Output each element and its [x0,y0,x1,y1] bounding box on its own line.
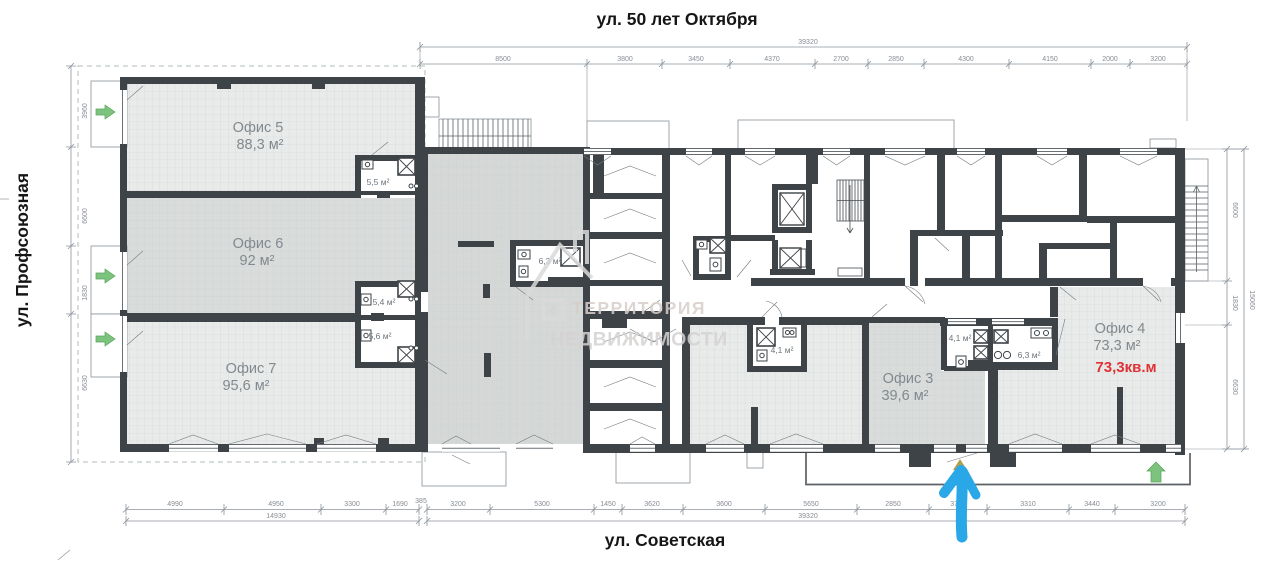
svg-text:2000: 2000 [1102,56,1118,63]
svg-text:2700: 2700 [833,56,849,63]
svg-text:39320: 39320 [798,39,818,46]
svg-text:15060: 15060 [1248,290,1255,310]
svg-text:ул. 50 лет Октября: ул. 50 лет Октября [596,9,757,29]
svg-text:ул. Профсоюзная: ул. Профсоюзная [12,173,32,327]
svg-text:39320: 39320 [798,513,818,520]
svg-text:5,5 м²: 5,5 м² [367,177,390,187]
svg-text:Офис 7: Офис 7 [226,361,277,377]
svg-text:3960: 3960 [82,103,89,119]
svg-text:Офис 3: Офис 3 [883,371,934,387]
svg-text:3200: 3200 [450,501,466,508]
svg-text:4300: 4300 [958,56,974,63]
svg-text:14930: 14930 [266,513,286,520]
svg-text:ТЕРРИТОРИЯ: ТЕРРИТОРИЯ [572,298,706,318]
svg-text:6600: 6600 [1231,202,1238,218]
svg-text:3300: 3300 [344,501,360,508]
svg-text:4150: 4150 [1042,56,1058,63]
svg-text:4,1 м²: 4,1 м² [771,345,794,355]
svg-text:73,3кв.м: 73,3кв.м [1095,359,1156,376]
svg-text:4,1 м²: 4,1 м² [949,333,972,343]
svg-text:Офис 6: Офис 6 [233,236,284,252]
svg-text:3200: 3200 [1150,56,1166,63]
svg-text:6630: 6630 [82,375,89,391]
svg-text:ул. Советская: ул. Советская [605,530,725,550]
svg-text:1830: 1830 [1231,295,1238,311]
svg-text:95,6 м²: 95,6 м² [222,378,269,394]
svg-text:8500: 8500 [495,56,511,63]
svg-text:3800: 3800 [617,56,633,63]
svg-text:1690: 1690 [392,501,408,508]
svg-text:6,3 м²: 6,3 м² [1018,350,1041,360]
svg-text:6600: 6600 [82,208,89,224]
svg-text:3310: 3310 [1020,501,1036,508]
svg-text:3200: 3200 [1150,501,1166,508]
svg-text:3600: 3600 [716,501,732,508]
svg-text:39,6 м²: 39,6 м² [881,388,928,404]
svg-text:3620: 3620 [644,501,660,508]
svg-text:4990: 4990 [167,501,183,508]
svg-text:3450: 3450 [688,56,704,63]
svg-text:4370: 4370 [764,56,780,63]
svg-text:6630: 6630 [1231,379,1238,395]
svg-text:3440: 3440 [1084,501,1100,508]
svg-text:2850: 2850 [885,501,901,508]
svg-text:5,6 м²: 5,6 м² [369,331,392,341]
svg-text:Офис 5: Офис 5 [233,120,284,136]
svg-text:1450: 1450 [600,501,616,508]
svg-text:5650: 5650 [803,501,819,508]
svg-text:92 м²: 92 м² [240,253,275,269]
svg-text:4950: 4950 [268,501,284,508]
svg-text:5300: 5300 [534,501,550,508]
svg-text:2850: 2850 [888,56,904,63]
svg-text:385: 385 [415,498,427,505]
svg-text:Офис 4: Офис 4 [1095,321,1146,337]
svg-text:1830: 1830 [82,285,89,301]
svg-text:НЕДВИЖИМОСТИ: НЕДВИЖИМОСТИ [550,329,728,351]
svg-text:88,3 м²: 88,3 м² [236,137,283,153]
svg-text:5,4 м²: 5,4 м² [373,297,396,307]
svg-text:73,3 м²: 73,3 м² [1093,338,1140,354]
